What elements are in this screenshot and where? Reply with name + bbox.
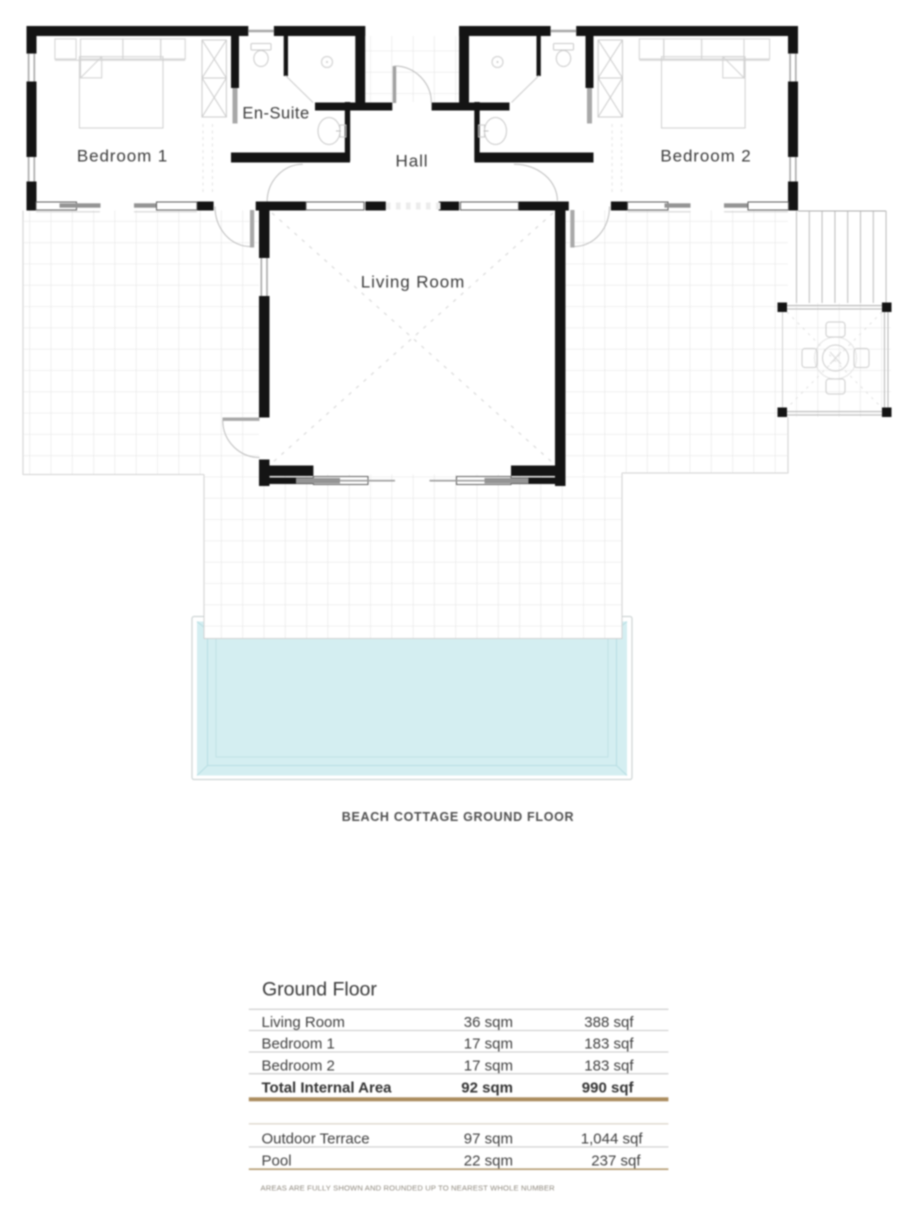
svg-text:Bedroom 1: Bedroom 1 (77, 147, 168, 166)
svg-text:En-Suite: En-Suite (242, 105, 309, 123)
svg-text:Living Room: Living Room (361, 273, 465, 292)
svg-text:237 sqf: 237 sqf (591, 1152, 641, 1169)
svg-text:BEACH COTTAGE GROUND FLOOR: BEACH COTTAGE GROUND FLOOR (342, 810, 575, 824)
svg-text:Total Internal Area: Total Internal Area (262, 1080, 393, 1097)
svg-text:Bedroom 2: Bedroom 2 (660, 147, 751, 166)
svg-text:Bedroom 2: Bedroom 2 (262, 1057, 335, 1074)
svg-text:Living Room: Living Room (262, 1014, 345, 1031)
svg-text:17 sqm: 17 sqm (464, 1057, 513, 1074)
svg-text:Hall: Hall (396, 152, 429, 171)
svg-text:Ground Floor: Ground Floor (262, 979, 377, 1001)
svg-text:97 sqm: 97 sqm (464, 1130, 513, 1147)
svg-text:92 sqm: 92 sqm (461, 1080, 513, 1097)
svg-text:1,044 sqf: 1,044 sqf (581, 1130, 644, 1147)
svg-text:22 sqm: 22 sqm (464, 1152, 513, 1169)
svg-text:17 sqm: 17 sqm (464, 1036, 513, 1053)
svg-text:Pool: Pool (262, 1152, 292, 1169)
svg-text:388 sqf: 388 sqf (584, 1014, 634, 1031)
svg-text:AREAS ARE FULLY SHOWN AND ROUN: AREAS ARE FULLY SHOWN AND ROUNDED UP TO … (261, 1184, 556, 1193)
svg-text:36 sqm: 36 sqm (464, 1014, 513, 1031)
svg-text:183 sqf: 183 sqf (584, 1057, 634, 1074)
svg-text:990 sqf: 990 sqf (582, 1080, 635, 1097)
svg-text:Bedroom 1: Bedroom 1 (262, 1036, 335, 1053)
svg-text:Outdoor Terrace: Outdoor Terrace (262, 1130, 370, 1147)
svg-text:183 sqf: 183 sqf (584, 1036, 634, 1053)
